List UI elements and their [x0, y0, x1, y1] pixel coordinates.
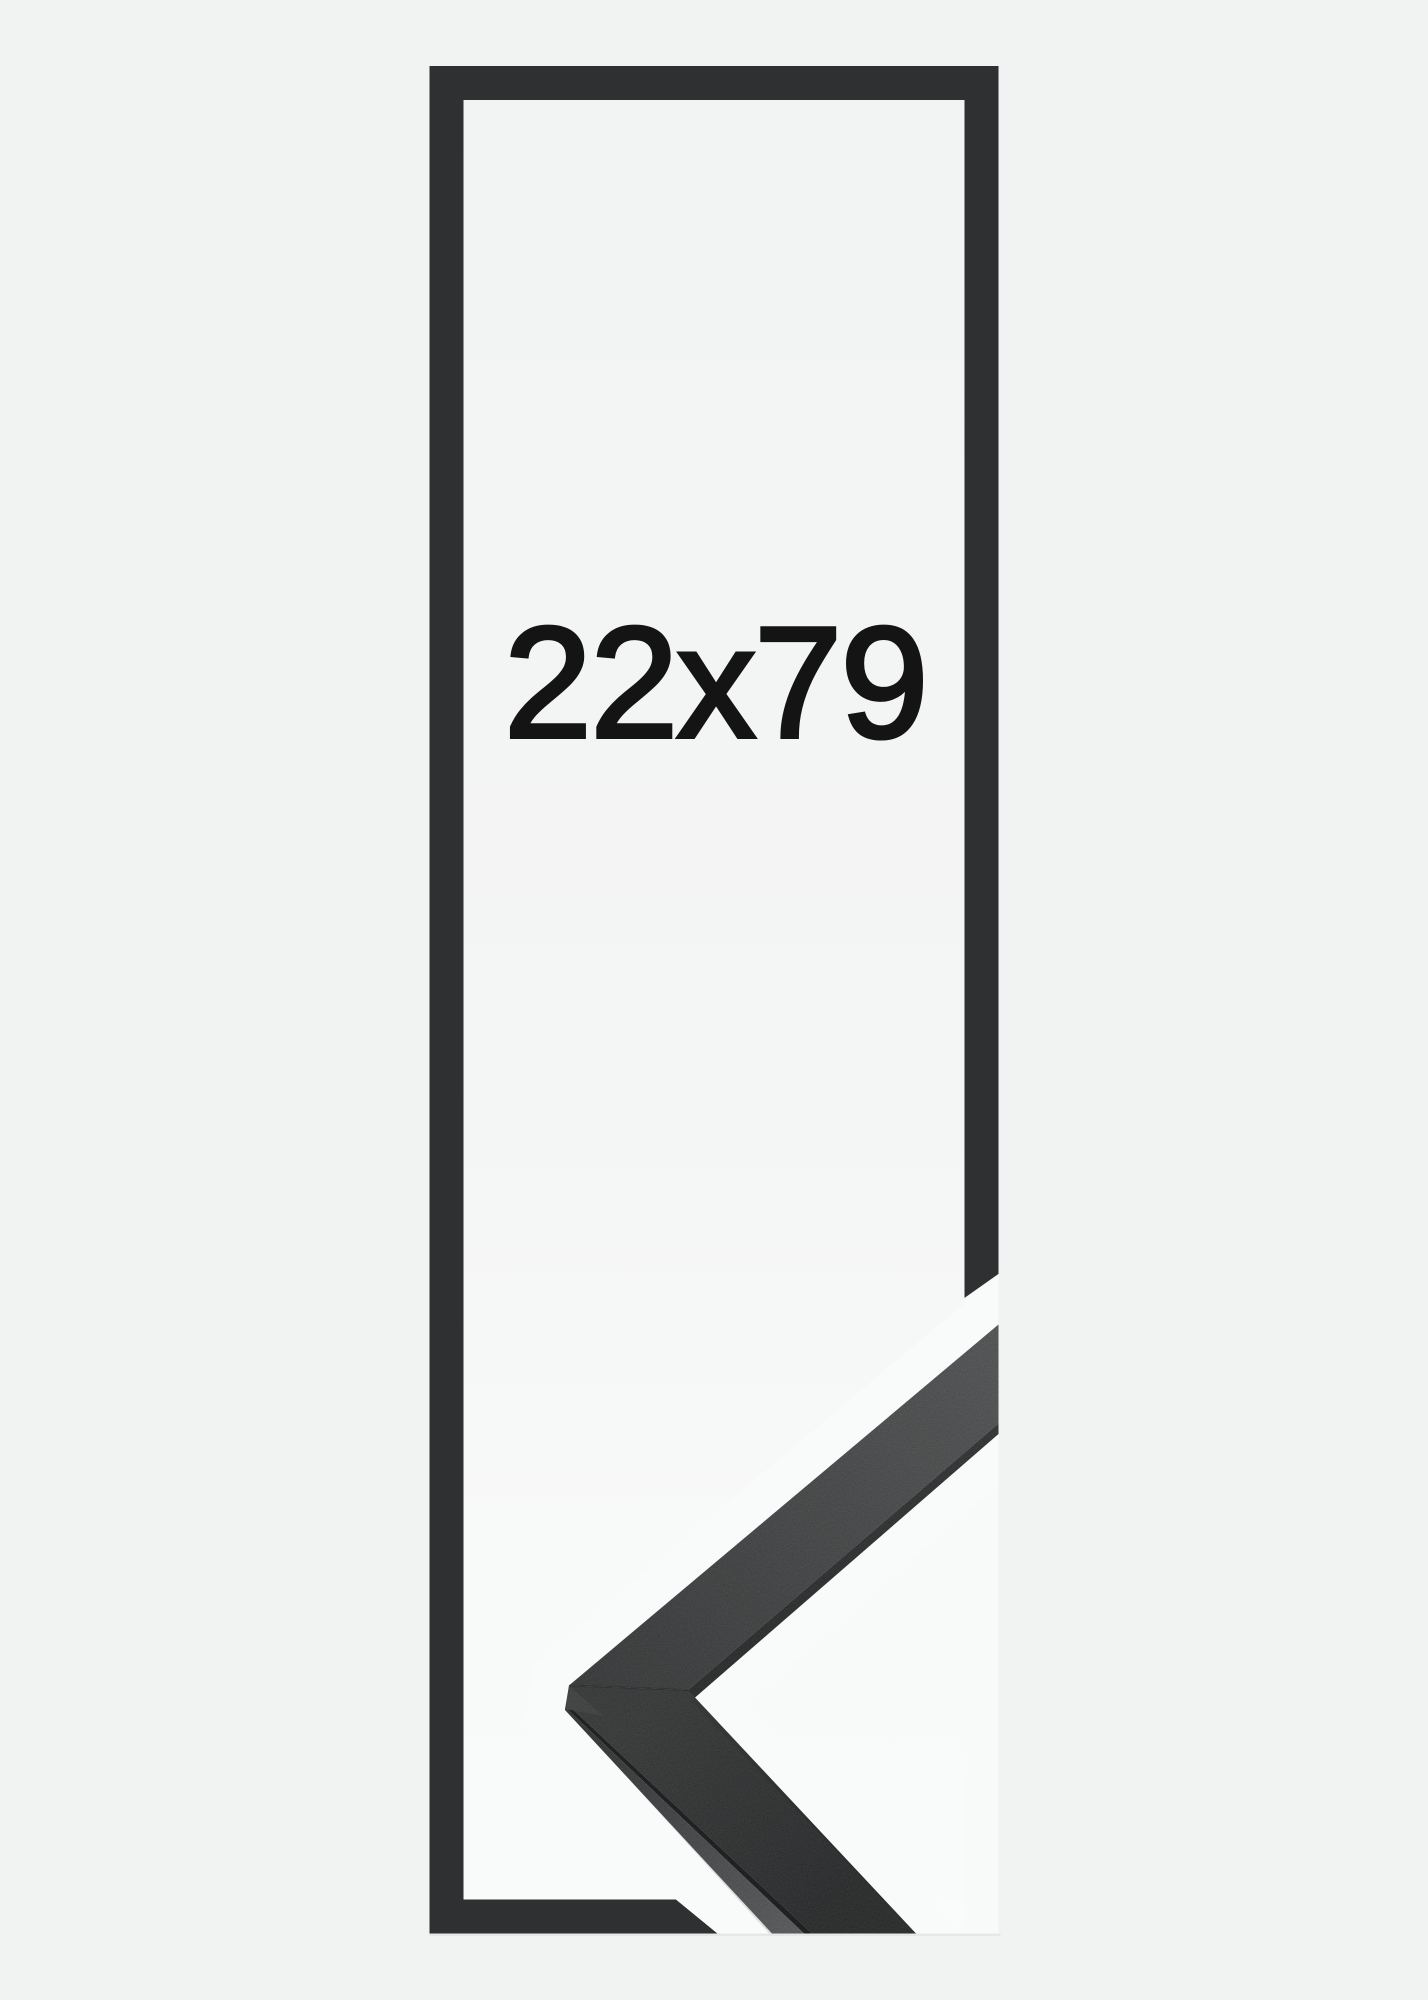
svg-text:22x79: 22x79: [504, 595, 927, 771]
